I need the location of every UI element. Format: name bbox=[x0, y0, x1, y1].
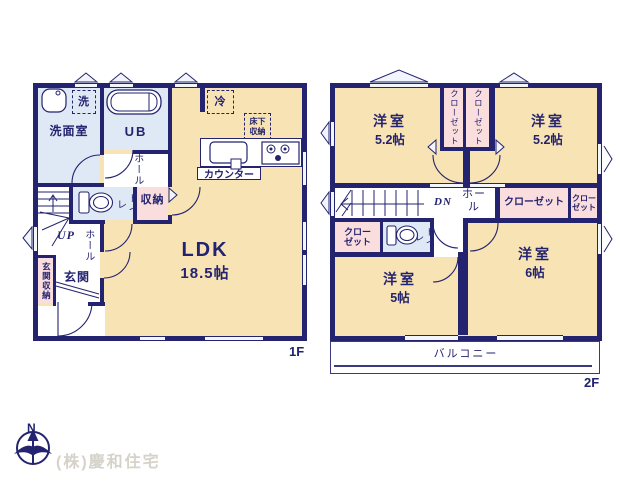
wall bbox=[168, 88, 172, 187]
porch-area bbox=[38, 306, 105, 336]
wall bbox=[489, 88, 495, 150]
wall bbox=[465, 218, 597, 223]
sliding-window bbox=[405, 335, 458, 341]
fridge-space: 冷 bbox=[207, 90, 234, 114]
compass-icon: N bbox=[14, 421, 52, 464]
floor2-tag: 2F bbox=[584, 375, 599, 390]
wall bbox=[53, 258, 56, 306]
room-ne-label: 洋室 bbox=[518, 112, 578, 130]
window bbox=[597, 224, 602, 254]
wall-fridge-stub bbox=[200, 88, 205, 112]
room-unit-bath bbox=[104, 88, 168, 150]
kitchen-counter bbox=[200, 138, 302, 167]
closet-n2-label: クローゼット bbox=[468, 89, 487, 146]
floorplan-canvas: 洗 冷 床下収納 カウンター 洗面室 UB ホール トイレ 収納 UP ホール … bbox=[0, 0, 640, 480]
closet-n1-label: クローゼット bbox=[445, 89, 462, 146]
room-nw-label: 洋室 bbox=[360, 112, 420, 130]
washroom-label: 洗面室 bbox=[38, 124, 100, 140]
floor1-tag: 1F bbox=[289, 344, 304, 359]
entrance-label: 玄関 bbox=[60, 270, 94, 285]
compass-north-label: N bbox=[27, 421, 36, 435]
window bbox=[500, 83, 528, 88]
wall bbox=[133, 220, 172, 224]
door-threshold bbox=[430, 183, 463, 188]
balcony-rail-line bbox=[334, 365, 592, 367]
wall bbox=[568, 188, 571, 218]
closet-west-label: クローゼット bbox=[342, 224, 373, 250]
toilet-label-1f: トイレ bbox=[119, 188, 132, 220]
stairs-area-2f bbox=[335, 188, 430, 218]
underfloor-storage-box: 床下収納 bbox=[244, 113, 271, 140]
closet-east-label: クローゼット bbox=[572, 190, 596, 216]
closet-mid-label: クローゼット bbox=[500, 195, 568, 210]
balcony: バルコニー bbox=[330, 341, 600, 374]
window bbox=[175, 83, 197, 88]
window bbox=[370, 83, 428, 88]
storage-label: 収納 bbox=[137, 192, 168, 208]
wall bbox=[100, 224, 104, 252]
wall bbox=[505, 183, 597, 188]
wall bbox=[335, 252, 433, 257]
room-sw-size: 5帖 bbox=[365, 290, 435, 306]
window bbox=[302, 152, 307, 185]
room-nw-size: 5.2帖 bbox=[360, 132, 420, 148]
ldk-label: LDK bbox=[150, 238, 260, 262]
hall-2f-label: ホール bbox=[457, 194, 491, 208]
window bbox=[330, 122, 335, 146]
balcony-label: バルコニー bbox=[331, 347, 601, 361]
window bbox=[33, 227, 38, 251]
window bbox=[330, 192, 335, 216]
wall bbox=[69, 187, 73, 220]
stairs-up-label: UP bbox=[54, 228, 78, 243]
wall bbox=[335, 183, 430, 188]
ldk-size-label: 18.5帖 bbox=[150, 264, 260, 284]
window bbox=[75, 83, 97, 88]
room-ne-size: 5.2帖 bbox=[518, 132, 578, 148]
counter-label: カウンター bbox=[204, 166, 254, 181]
counter-label-box: カウンター bbox=[197, 167, 261, 180]
floor2-plan: 洋室 5.2帖 クローゼット クローゼット 洋室 5.2帖 DN ホール クロー… bbox=[330, 83, 602, 341]
wall bbox=[463, 88, 466, 147]
sliding-window bbox=[497, 335, 563, 341]
unit-bath-label: UB bbox=[104, 124, 168, 140]
fridge-label: 冷 bbox=[215, 96, 227, 109]
sliding-window bbox=[205, 336, 263, 341]
door-threshold bbox=[470, 183, 505, 188]
room-se-size: 6帖 bbox=[500, 265, 570, 281]
window bbox=[110, 83, 133, 88]
window bbox=[302, 255, 307, 285]
floor1-plan: 洗 冷 床下収納 カウンター 洗面室 UB ホール トイレ 収納 UP ホール … bbox=[33, 83, 307, 341]
washer-space: 洗 bbox=[72, 90, 96, 114]
wall bbox=[440, 88, 444, 147]
underfloor-storage-label: 床下収納 bbox=[249, 117, 267, 135]
company-credit: (株)慶和住宅 bbox=[56, 448, 161, 472]
wall bbox=[88, 302, 105, 306]
wall bbox=[100, 88, 104, 155]
wall bbox=[458, 257, 463, 335]
room-sw-label: 洋室 bbox=[365, 270, 435, 288]
window bbox=[302, 222, 307, 250]
stairs-dn-label: DN bbox=[432, 195, 454, 209]
wall bbox=[380, 222, 383, 252]
window bbox=[140, 336, 165, 341]
room-se-label: 洋室 bbox=[500, 245, 570, 263]
entrance-storage-label: 玄関収納 bbox=[39, 260, 52, 302]
hall-upper-label: ホール bbox=[130, 152, 144, 187]
toilet-label-2f: トイレ bbox=[416, 223, 429, 251]
hall-lower-label: ホール bbox=[81, 228, 95, 263]
washer-label: 洗 bbox=[78, 96, 90, 109]
window bbox=[597, 144, 602, 174]
wall bbox=[463, 218, 468, 335]
